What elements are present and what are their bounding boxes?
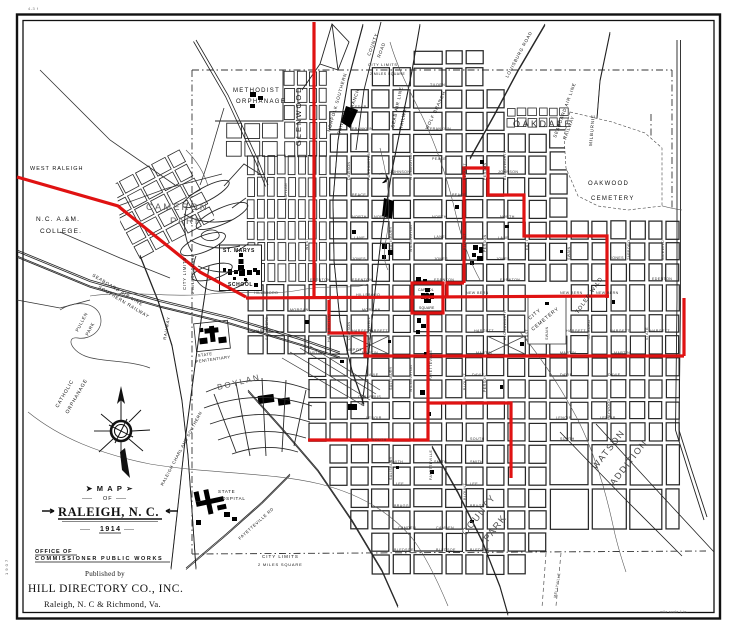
svg-text:SALISBURY: SALISBURY	[389, 456, 393, 480]
svg-text:STATE: STATE	[645, 327, 649, 340]
svg-text:COMMISSIONER PUBLIC WORKS: COMMISSIONER PUBLIC WORKS	[35, 556, 163, 562]
svg-text:BLOUNT: BLOUNT	[463, 373, 467, 390]
svg-text:EDENTON: EDENTON	[310, 278, 330, 282]
svg-text:SAUNDERS: SAUNDERS	[265, 317, 269, 340]
svg-text:CEDAR: CEDAR	[352, 105, 367, 109]
svg-text:HOSPITAL: HOSPITAL	[218, 496, 246, 501]
svg-text:CAMDEN: CAMDEN	[436, 526, 454, 530]
svg-text:MARTIN: MARTIN	[362, 351, 378, 355]
svg-text:SOUTH: SOUTH	[372, 438, 387, 442]
svg-text:PEACE: PEACE	[352, 193, 366, 197]
svg-text:HILLSBORO: HILLSBORO	[356, 293, 380, 297]
svg-text:LEE: LEE	[470, 482, 478, 486]
svg-text:STATE: STATE	[218, 489, 235, 494]
svg-text:——: ——	[116, 496, 126, 502]
svg-text:TARBORO: TARBORO	[627, 240, 631, 260]
svg-text:EDENTON: EDENTON	[652, 277, 672, 281]
svg-text:1 9 0 7: 1 9 0 7	[4, 559, 9, 575]
svg-text:OFFICE OF: OFFICE OF	[35, 549, 72, 555]
svg-text:N.C. A.&M.: N.C. A.&M.	[36, 216, 80, 223]
svg-text:CABARRUS: CABARRUS	[358, 395, 381, 399]
svg-text:CITY LIMITS: CITY LIMITS	[262, 554, 299, 559]
svg-text:MARTIN: MARTIN	[476, 351, 492, 355]
svg-text:PARK: PARK	[170, 216, 203, 227]
svg-text:BRAGG: BRAGG	[394, 504, 409, 508]
svg-text:EDENTON: EDENTON	[434, 278, 454, 282]
svg-text:DAWSON: DAWSON	[347, 162, 351, 180]
svg-text:BLEDSOE: BLEDSOE	[436, 548, 456, 552]
svg-text:HARRINGTON: HARRINGTON	[367, 152, 371, 180]
svg-text:——: ——	[124, 527, 134, 533]
svg-text:SMITH: SMITH	[470, 460, 483, 464]
svg-text:——: ——	[82, 496, 92, 502]
svg-text:METHODIST: METHODIST	[233, 88, 280, 94]
svg-text:PERSON: PERSON	[483, 234, 487, 252]
svg-text:RALEIGH, N. C.: RALEIGH, N. C.	[58, 505, 159, 519]
svg-text:SALISBURY: SALISBURY	[389, 366, 393, 390]
svg-text:BLEDSOE: BLEDSOE	[394, 548, 414, 552]
svg-text:NEW BERN: NEW BERN	[466, 291, 489, 295]
svg-text:HARRINGTON: HARRINGTON	[327, 314, 331, 342]
svg-text:EAST: EAST	[525, 239, 529, 250]
svg-text:MORGAN: MORGAN	[290, 308, 309, 312]
svg-text:MORGAN: MORGAN	[362, 308, 381, 312]
svg-text:WILMINGTON: WILMINGTON	[409, 153, 413, 180]
svg-text:2 MILES SQUARE: 2 MILES SQUARE	[191, 254, 195, 294]
svg-text:OF: OF	[103, 496, 113, 502]
svg-text:Published by: Published by	[85, 570, 125, 578]
svg-text:WEST: WEST	[305, 238, 309, 250]
svg-text:JONES: JONES	[610, 256, 624, 260]
svg-text:HARGETT: HARGETT	[474, 329, 494, 333]
svg-text:JOHNSON: JOHNSON	[498, 170, 518, 174]
svg-text:LANE: LANE	[434, 235, 445, 239]
svg-text:BLEDSOE: BLEDSOE	[470, 548, 490, 552]
svg-text:SOUTH: SOUTH	[560, 437, 575, 441]
svg-text:CEMETERY: CEMETERY	[591, 196, 635, 202]
svg-text:FAYETTEVILLE: FAYETTEVILLE	[429, 349, 433, 380]
svg-text:CAPITOL: CAPITOL	[418, 288, 434, 292]
svg-text:LENOIR: LENOIR	[366, 416, 382, 420]
svg-text:DAVIE: DAVIE	[560, 373, 573, 377]
svg-text:DAVIE: DAVIE	[366, 373, 379, 377]
svg-text:NEW BERN: NEW BERN	[560, 291, 583, 295]
svg-text:EDENTON: EDENTON	[500, 278, 520, 282]
svg-text:WILMINGTON: WILMINGTON	[409, 225, 413, 252]
svg-text:HARGETT: HARGETT	[610, 329, 630, 333]
svg-text:COLLEGE.: COLLEGE.	[40, 228, 82, 235]
svg-text:SWAIN: SWAIN	[545, 326, 549, 340]
svg-text:HILLSBORO: HILLSBORO	[254, 291, 278, 295]
svg-text:OAKDALE: OAKDALE	[513, 119, 573, 129]
svg-text:CAMDEN: CAMDEN	[398, 526, 416, 530]
svg-text:PERSON: PERSON	[483, 162, 487, 180]
svg-text:SALISBURY: SALISBURY	[389, 226, 393, 250]
svg-text:TARBORO: TARBORO	[587, 320, 591, 340]
svg-text:CITY LIMITS: CITY LIMITS	[368, 63, 398, 67]
svg-text:FAYETTEVILLE: FAYETTEVILLE	[429, 449, 433, 480]
svg-text:HAYWOOD: HAYWOOD	[607, 398, 611, 420]
svg-text:NORTH: NORTH	[374, 215, 389, 219]
svg-text:BOYLAN: BOYLAN	[284, 183, 288, 200]
svg-text:BLOUNT: BLOUNT	[463, 233, 467, 250]
svg-text:HILL DIRECTORY CO., INC.: HILL DIRECTORY CO., INC.	[28, 583, 183, 595]
svg-text:LANE: LANE	[354, 236, 365, 240]
svg-text:2 MILES SQUARE: 2 MILES SQUARE	[370, 72, 406, 76]
svg-text:SQUARE: SQUARE	[419, 306, 435, 310]
svg-text:BLOODWORTH: BLOODWORTH	[503, 310, 507, 340]
svg-text:mile scale 1 in.: mile scale 1 in.	[660, 610, 688, 614]
svg-text:DAVIE: DAVIE	[608, 373, 621, 377]
svg-text:PEACE: PEACE	[452, 193, 466, 197]
svg-text:ST. MARYS: ST. MARYS	[223, 248, 255, 254]
svg-text:SCHOOL: SCHOOL	[228, 282, 253, 288]
svg-text:MARTIN: MARTIN	[614, 351, 630, 355]
svg-text:SWAIN: SWAIN	[567, 246, 571, 260]
svg-text:SMITH: SMITH	[434, 460, 447, 464]
svg-text:OAKWOOD: OAKWOOD	[588, 181, 629, 187]
svg-text:CITY LIMITS: CITY LIMITS	[182, 257, 187, 290]
svg-text:BLOODWORTH: BLOODWORTH	[503, 150, 507, 180]
svg-text:HARGETT: HARGETT	[566, 329, 586, 333]
svg-text:➤ M A P ➣: ➤ M A P ➣	[86, 484, 134, 493]
svg-text:WEST RALEIGH: WEST RALEIGH	[30, 166, 83, 172]
svg-text:LENOIR: LENOIR	[556, 416, 572, 420]
svg-text:MARTIN: MARTIN	[306, 351, 322, 355]
svg-text:PEACE: PEACE	[432, 157, 446, 161]
svg-text:4-3 f: 4-3 f	[28, 6, 39, 11]
svg-text:TILDEN: TILDEN	[430, 83, 445, 87]
svg-text:PERSON: PERSON	[483, 374, 487, 392]
svg-text:FRANKLIN: FRANKLIN	[352, 127, 373, 131]
svg-text:LANE: LANE	[498, 236, 509, 240]
svg-text:BRAGG: BRAGG	[470, 504, 485, 508]
svg-text:FRANKLIN: FRANKLIN	[430, 127, 451, 131]
svg-text:JONES: JONES	[434, 257, 448, 261]
svg-text:JONES: JONES	[496, 257, 510, 261]
svg-text:EDENTON: EDENTON	[352, 278, 372, 282]
svg-text:WILMINGTON: WILMINGTON	[409, 365, 413, 392]
svg-text:——: ——	[80, 527, 90, 533]
svg-text:NORTH: NORTH	[352, 215, 367, 219]
svg-text:SOUTH: SOUTH	[470, 437, 485, 441]
svg-text:NORTH: NORTH	[500, 215, 515, 219]
svg-text:ORPHANAGE: ORPHANAGE	[236, 99, 286, 105]
svg-text:EAST: EAST	[525, 329, 529, 340]
svg-text:2 MILES SQUARE: 2 MILES SQUARE	[258, 562, 303, 567]
svg-text:BLOUNT: BLOUNT	[463, 483, 467, 500]
svg-text:JOHNSON: JOHNSON	[390, 170, 410, 174]
svg-text:IDLEWILD: IDLEWILD	[661, 240, 665, 260]
svg-text:CAMERON: CAMERON	[146, 202, 209, 213]
svg-text:DEPOT: DEPOT	[346, 347, 362, 352]
svg-text:DAWSON: DAWSON	[347, 322, 351, 340]
svg-text:BLOUNT: BLOUNT	[463, 163, 467, 180]
svg-text:1914: 1914	[100, 526, 122, 533]
svg-text:GLENWOOD: GLENWOOD	[294, 85, 303, 146]
svg-text:McDOWELL: McDOWELL	[367, 317, 371, 340]
svg-text:NORTH: NORTH	[432, 215, 447, 219]
svg-text:NEW BERN: NEW BERN	[596, 291, 619, 295]
svg-text:MARTIN: MARTIN	[560, 351, 576, 355]
svg-text:JONES: JONES	[352, 257, 366, 261]
svg-text:LEE: LEE	[396, 482, 404, 486]
svg-text:HARGETT: HARGETT	[650, 329, 670, 333]
svg-text:Raleigh, N. C & Richmond, Va: Raleigh, N. C & Richmond, Va.	[44, 599, 161, 609]
